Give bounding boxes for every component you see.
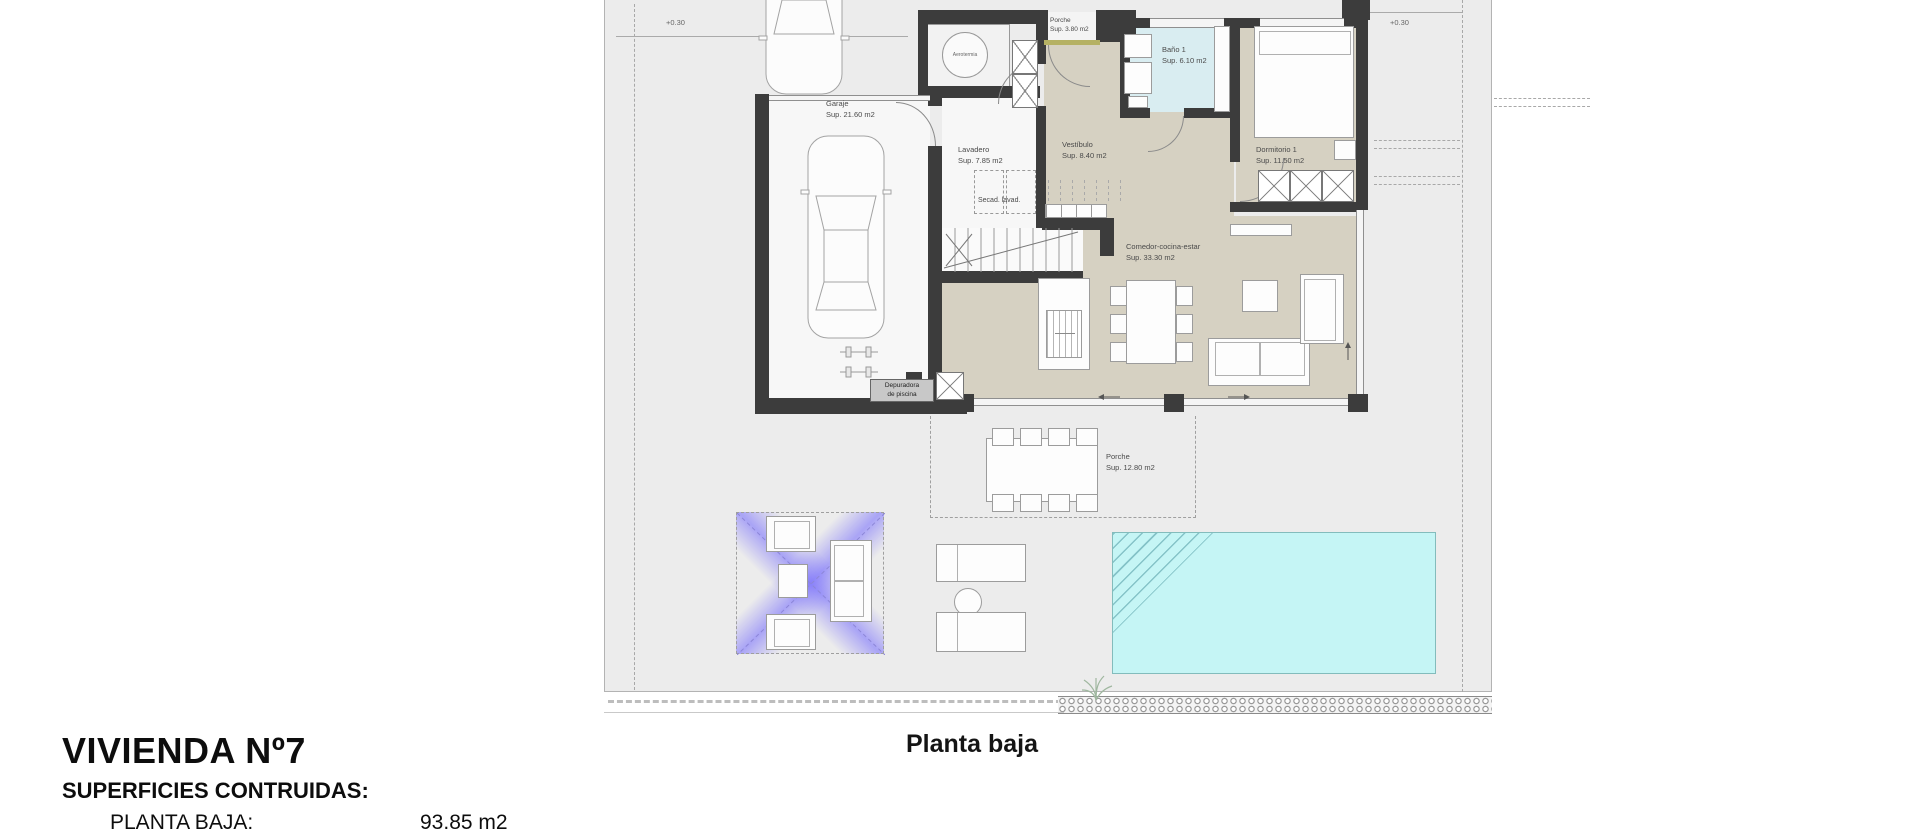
outdoor-chair <box>992 494 1014 512</box>
laundry-appliance-label: Secad. lavad. <box>978 196 1020 206</box>
terrace-edge-line <box>1368 12 1462 13</box>
dining-chair <box>1176 342 1193 362</box>
room-area: Sup. 8.40 m2 <box>1062 151 1107 162</box>
wall-segment <box>1120 108 1150 118</box>
vestibule-paving-grid <box>1048 178 1124 204</box>
pool-slope-hatch <box>1113 533 1213 633</box>
armchair <box>1300 274 1344 344</box>
room-name: Porche <box>1106 452 1155 463</box>
dining-chair <box>1176 286 1193 306</box>
plant-icon <box>1076 672 1116 705</box>
dining-chair <box>1110 314 1127 334</box>
wall-segment <box>755 398 967 414</box>
wall-segment <box>1230 202 1356 212</box>
room-area: Sup. 6.10 m2 <box>1162 56 1207 67</box>
wall-segment <box>1230 112 1240 162</box>
stone-wall-strip <box>1058 696 1492 714</box>
sofa <box>1208 338 1310 386</box>
closet-utility <box>1012 40 1038 108</box>
outdoor-table <box>986 438 1098 502</box>
outdoor-chair <box>992 428 1014 446</box>
glass-wall-east <box>1356 210 1364 400</box>
surfaces-row: PLANTA BAJA: 93.85 m2 <box>62 811 522 835</box>
boundary-dashed-out-1 <box>1494 98 1590 99</box>
outdoor-chair <box>1048 428 1070 446</box>
room-name: Baño 1 <box>1162 45 1207 56</box>
level-mark-terrace: +0.30 <box>1390 18 1409 27</box>
sun-lounger <box>936 544 1026 582</box>
wall-segment <box>918 10 1040 24</box>
page: { "plan_caption": "Planta baja", "title_… <box>0 0 1920 837</box>
boundary-dashed-right <box>1462 0 1463 692</box>
car-garage-icon <box>798 132 894 342</box>
project-title: VIVIENDA Nº7 <box>62 730 522 772</box>
lounge-armchair <box>766 516 816 552</box>
lounge-coffee-table <box>778 564 808 598</box>
glass-wall-south <box>967 398 1357 406</box>
aerotermia-unit: Aerotermia <box>942 32 988 78</box>
lounge-sofa <box>830 540 872 622</box>
room-label-vestibulo: Vestíbulo Sup. 8.40 m2 <box>1062 140 1107 162</box>
surfaces-subtitle: SUPERFICIES CONTRUIDAS: <box>62 778 522 804</box>
aerotermia-label: Aerotermia <box>953 52 977 58</box>
bath-shower <box>1214 26 1230 112</box>
room-name: Vestíbulo <box>1062 140 1107 151</box>
title-block: VIVIENDA Nº7 SUPERFICIES CONTRUIDAS: PLA… <box>62 730 522 835</box>
wall-segment <box>1342 0 1370 20</box>
wall-segment <box>755 94 769 404</box>
room-name: Porche <box>1050 16 1089 25</box>
room-name: Comedor-cocina-estar <box>1126 242 1200 253</box>
lounge-armchair <box>766 614 816 650</box>
room-name: Garaje <box>826 99 875 110</box>
room-area: Sup. 3.80 m2 <box>1050 25 1089 34</box>
wall-segment <box>1100 218 1114 256</box>
slide-arrow-left-icon <box>1096 388 1122 406</box>
washer-box <box>974 170 1004 214</box>
outdoor-chair <box>1020 494 1042 512</box>
plan-caption: Planta baja <box>906 730 1038 759</box>
pool-pump-label-1: Depuradora <box>885 382 919 390</box>
surfaces-row-label: PLANTA BAJA: <box>110 811 253 835</box>
pool-pump-box: Depuradora de piscina <box>870 379 934 402</box>
window-bath <box>1150 18 1224 28</box>
room-area: Sup. 12.80 m2 <box>1106 463 1155 474</box>
plot-bottom-line-left <box>604 712 1064 713</box>
wall-segment <box>918 24 928 90</box>
bath-counter <box>1124 62 1152 94</box>
wall-segment <box>1356 18 1368 210</box>
outdoor-chair <box>1076 428 1098 446</box>
closet-garage-corner <box>936 372 964 400</box>
room-label-comedor: Comedor-cocina-estar Sup. 33.30 m2 <box>1126 242 1200 264</box>
room-label-porche-bajo: Porche Sup. 12.80 m2 <box>1106 452 1155 474</box>
slide-arrow-up-icon <box>1344 340 1352 367</box>
nightstand <box>1334 140 1356 160</box>
kitchen-sink <box>1046 310 1082 358</box>
wall-segment <box>928 96 942 106</box>
room-label-garaje: Garaje Sup. 21.60 m2 <box>826 99 875 121</box>
outdoor-chair <box>1076 494 1098 512</box>
post <box>1348 394 1368 412</box>
bath-toilet <box>1128 96 1148 108</box>
room-label-dormitorio1: Dormitorio 1 Sup. 11.50 m2 <box>1256 145 1304 167</box>
post <box>1164 394 1184 412</box>
dryer-box <box>1006 170 1036 214</box>
wall-segment <box>1230 26 1240 112</box>
room-area: Sup. 21.60 m2 <box>826 110 875 121</box>
swimming-pool <box>1112 532 1436 674</box>
dining-chair <box>1176 314 1193 334</box>
boundary-dashed-out-2 <box>1494 106 1590 107</box>
dining-chair <box>1110 286 1127 306</box>
car-driveway-icon <box>756 0 852 98</box>
dining-chair <box>1110 342 1127 362</box>
room-area: Sup. 33.30 m2 <box>1126 253 1200 264</box>
room-label-porche-top: Porche Sup. 3.80 m2 <box>1050 16 1089 35</box>
terrace-paving-dash-1 <box>1374 140 1460 141</box>
room-label-lavadero: Lavadero Sup. 7.85 m2 <box>958 145 1003 167</box>
bed <box>1254 26 1354 138</box>
cabinet-understairs <box>1045 204 1107 218</box>
staircase <box>942 228 1083 272</box>
cabinet-kitchen-wall <box>1230 224 1292 236</box>
room-area: Sup. 11.50 m2 <box>1256 156 1304 167</box>
dining-table <box>1126 280 1176 364</box>
wardrobe-bedroom <box>1258 170 1354 202</box>
surfaces-row-value: 93.85 m2 <box>420 811 508 835</box>
bath-sink <box>1124 34 1152 58</box>
room-label-bano1: Baño 1 Sup. 6.10 m2 <box>1162 45 1207 67</box>
slide-arrow-right-icon <box>1226 388 1252 406</box>
level-mark-driveway: +0.30 <box>666 18 685 27</box>
boundary-dashed-left <box>634 4 635 690</box>
room-name: Dormitorio 1 <box>1256 145 1304 156</box>
outdoor-chair <box>1020 428 1042 446</box>
room-area: Sup. 7.85 m2 <box>958 156 1003 167</box>
pool-pump-label-2: de piscina <box>887 391 916 399</box>
outdoor-chair <box>1048 494 1070 512</box>
terrace-paving-dash-3 <box>1374 176 1460 177</box>
side-table <box>1242 280 1278 312</box>
terrace-paving-dash-4 <box>1374 184 1460 185</box>
sun-lounger <box>936 612 1026 652</box>
room-name: Lavadero <box>958 145 1003 156</box>
terrace-paving-dash-2 <box>1374 148 1460 149</box>
